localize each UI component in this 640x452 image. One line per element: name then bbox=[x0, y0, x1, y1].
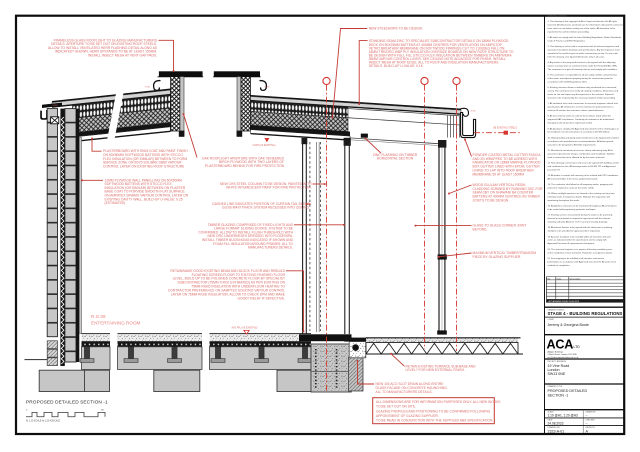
svg-text:R.G.09: R.G.09 bbox=[91, 314, 106, 319]
svg-text:ALL TO MANUFACTURERS DETAILS.: ALL TO MANUFACTURERS DETAILS. bbox=[376, 390, 433, 394]
svg-text:2323-A-01: 2323-A-01 bbox=[548, 429, 565, 433]
svg-text:SERVICE ZONE ON 50/75 SOLIBRE: SERVICE ZONE ON 50/75 SOLIBRE DB80 VAPOU… bbox=[103, 161, 182, 165]
svg-text:75MM RIGID INSULATION WITH UND: 75MM RIGID INSULATION WITH UNDERFLOOR HE… bbox=[191, 285, 285, 289]
svg-text:UB EXISTING STEELS: UB EXISTING STEELS bbox=[493, 127, 517, 129]
svg-text:PROPOSED DETAILED SECTION -1: PROPOSED DETAILED SECTION -1 bbox=[26, 400, 108, 406]
svg-text:FABRICATOR ON 18MM MARINE PLYW: FABRICATOR ON 18MM MARINE PLYWOOD bbox=[473, 161, 542, 165]
svg-text:(ESTIMATED): (ESTIMATED) bbox=[105, 201, 126, 205]
svg-text:ACA: ACA bbox=[547, 337, 574, 351]
svg-text:VOID: VOID bbox=[264, 87, 270, 89]
svg-text:BATTENS AT 400MM CENTRES ON TI: BATTENS AT 400MM CENTRES ON TIMBER bbox=[473, 195, 541, 199]
svg-text:DASHED LINE INDICATES POSITION: DASHED LINE INDICATES POSITION OF CURTAI… bbox=[212, 202, 310, 206]
svg-text:BEYOND.: BEYOND. bbox=[473, 228, 488, 232]
svg-text:CONTROL LAYER ON EXISTING ROOF: CONTROL LAYER ON EXISTING ROOF STRUCTURE bbox=[103, 165, 185, 169]
svg-text:--: -- bbox=[586, 421, 588, 425]
svg-text:LINING TO LAP INTO ROOF BREATH: LINING TO LAP INTO ROOF BREATHER bbox=[473, 169, 535, 173]
svg-text:SEAM-2BY ON SHAWANI BA COUNTER: SEAM-2BY ON SHAWANI BA COUNTER bbox=[473, 191, 534, 195]
svg-text:ON AMPATEX SINAMO VAPOUR CONTR: ON AMPATEX SINAMO VAPOUR CONTROL LAYER O… bbox=[105, 194, 189, 198]
svg-text:CONTRACTOR PREFERENCE ON SAMPT: CONTRACTOR PREFERENCE ON SAMPTEX SOLID'R… bbox=[168, 289, 285, 293]
svg-text:LARGE FORMAT SLIDING DOORS. SY: LARGE FORMAT SLIDING DOORS. SYSTEM TO BE bbox=[214, 227, 294, 231]
svg-text:TO BE SET OUT ON SITE.: TO BE SET OUT ON SITE. bbox=[376, 405, 416, 409]
svg-text:12MM PLYWOOD WALL PANELLING ON: 12MM PLYWOOD WALL PANELLING ON 50X50MM bbox=[105, 178, 183, 182]
svg-text:STAGE 4 - BUILDING REGULATIONS: STAGE 4 - BUILDING REGULATIONS bbox=[548, 311, 623, 316]
svg-text:1M: 1M bbox=[101, 410, 104, 412]
svg-text:WOOD GLULAM VERTICAL RESIN: WOOD GLULAM VERTICAL RESIN bbox=[473, 183, 527, 187]
svg-text:MANUFACTURERS DETAILS.: MANUFACTURERS DETAILS. bbox=[248, 246, 293, 250]
svg-text:GLASS TO GLASS CORNER JOINT: GLASS TO GLASS CORNER JOINT bbox=[473, 224, 527, 228]
svg-text:INDICATED? SHOWN. HERR UPSTAND: INDICATED? SHOWN. HERR UPSTANDS TO BE AT… bbox=[55, 50, 157, 54]
svg-text:SW13 0NE: SW13 0NE bbox=[548, 372, 566, 376]
svg-text:19 Vine Road: 19 Vine Road bbox=[548, 364, 570, 368]
svg-text:NEW 100 ACO SLOT DRAIN ALONG E: NEW 100 ACO SLOT DRAIN ALONG ENTIRE bbox=[376, 382, 445, 386]
svg-text:LTD: LTD bbox=[574, 345, 581, 349]
svg-text:FLOATING SCREED FLOOR TO EXIST: FLOATING SCREED FLOOR TO EXISTING FINISH… bbox=[192, 273, 286, 277]
svg-text:VOID: VOID bbox=[470, 110, 476, 112]
svg-text:VOID: VOID bbox=[145, 87, 151, 89]
svg-text:CONFIRMED. ALLOW TO INSTALL FL: CONFIRMED. ALLOW TO INSTALL FLUSH THRESH… bbox=[198, 230, 293, 234]
svg-text:GLASS FACADE ON CONCRETE HAUNC: GLASS FACADE ON CONCRETE HAUNCHING. bbox=[376, 386, 448, 390]
svg-text:PLASTERBOARD BEHIND FOR FIRE P: PLASTERBOARD BEHIND FOR FIRE PROTECTION bbox=[205, 164, 285, 168]
svg-text:DETAILS. APERTURE TO BE SET OU: DETAILS. APERTURE TO BE SET OUT ON EXIST… bbox=[51, 42, 157, 46]
svg-text:EXISTING CAVITY WALL. BUILD-UP: EXISTING CAVITY WALL. BUILD-UP U-VALUE: … bbox=[105, 197, 183, 201]
svg-text:TO BE READ IN CONJUNCTION WITH: TO BE READ IN CONJUNCTION WITH THE SUPPL… bbox=[376, 418, 493, 422]
svg-text:ON 50X50MM SOFTWOOD BATTENS W: ON 50X50MM SOFTWOOD BATTENS WITH STICCO bbox=[103, 153, 183, 157]
svg-text:LEVEL? FOR NEW EXTERNAL FINISH: LEVEL? FOR NEW EXTERNAL FINISH. bbox=[406, 368, 466, 372]
svg-text:INSTALL TIMBER BUCKING/AS INDI: INSTALL TIMBER BUCKING/AS INDICATED IF S… bbox=[202, 238, 294, 242]
svg-text:POWDER COATED METAL GUTTER FAS: POWDER COATED METAL GUTTER FASCIA bbox=[473, 153, 542, 157]
svg-text:BASE COAT TO PORVIDE SMOOTH FL: BASE COAT TO PORVIDE SMOOTH FLAT SURFACE bbox=[105, 190, 186, 194]
svg-text:BOX GUTTER LINED WITH EPDM. GU: BOX GUTTER LINED WITH EPDM. GUTTER bbox=[473, 165, 541, 169]
svg-text:ALL DIMENSIONS ARE FOR INFORMA: ALL DIMENSIONS ARE FOR INFORMATION PURPO… bbox=[376, 400, 501, 404]
svg-text:NEW STEELWORK TO BE DESIGN.: NEW STEELWORK TO BE DESIGN. bbox=[369, 27, 423, 31]
svg-text:MEMBRANE 50 AT LEAST 150MM: MEMBRANE 50 AT LEAST 150MM bbox=[473, 173, 525, 177]
svg-text:AND ZN WRAPPED TO BE AGREED WI: AND ZN WRAPPED TO BE AGREED WITH bbox=[473, 157, 538, 161]
svg-text:RETAIN/MAKE GOOD EXISTING BEAM: RETAIN/MAKE GOOD EXISTING BEAM AND BLOCK… bbox=[170, 269, 285, 273]
svg-text:BIRCH PLYWOOD WITH TWO LAYERS: BIRCH PLYWOOD WITH TWO LAYERS OF bbox=[219, 160, 284, 164]
svg-text:FRAMELESS GLASS ROOFLIGHT TO G: FRAMELESS GLASS ROOFLIGHT TO GLAZING MAN… bbox=[54, 38, 158, 42]
svg-text:ZINC FLASHING ON TIMBER: ZINC FLASHING ON TIMBER bbox=[373, 153, 418, 157]
svg-text:DETAILS. BUILD-UP U-VALUE: 0.1: DETAILS. BUILD-UP U-VALUE: 0.1K bbox=[369, 64, 424, 68]
svg-text:GLISS MAXI TRACK SYSTEM RECESS: GLISS MAXI TRACK SYSTEM RECESSED INTO CE… bbox=[222, 206, 310, 210]
svg-text:JOISTS TO BE DESIGN: JOISTS TO BE DESIGN bbox=[473, 199, 509, 203]
svg-text:WHITE INTUMESCENT PAINT FOR FI: WHITE INTUMESCENT PAINT FOR FIRE PROTECT… bbox=[226, 186, 311, 190]
svg-text:FOAM FILL INSULATION AROUND FR: FOAM FILL INSULATION AROUND FRAMES. ALL … bbox=[213, 242, 293, 246]
svg-text:TIMBER GLAZING COMPRISED OF FI: TIMBER GLAZING COMPRISED OF FIXED LIGHTS… bbox=[208, 223, 294, 227]
svg-text:SECTION -1: SECTION -1 bbox=[548, 394, 569, 398]
svg-text:MAXIMUM VERTICAL TIMBER/TRANSO: MAXIMUM VERTICAL TIMBER/TRANSOM bbox=[473, 251, 537, 255]
svg-text:ENTERTAINING ROOM: ENTERTAINING ROOM bbox=[91, 320, 141, 325]
svg-text:INSULATION (OR SIMILAR) BETWEE: INSULATION (OR SIMILAR) BETWEEN ON PLAST… bbox=[105, 186, 186, 190]
svg-text:GLAZING PROFILES AND POSITIONI: GLAZING PROFILES AND POSITIONING TO BE C… bbox=[376, 409, 491, 413]
svg-text:ALLOW TO INSTALL VENTILATED H: ALLOW TO INSTALL VENTILATED HERR FLASHIN… bbox=[48, 46, 158, 50]
svg-text:PROPOSED DETAILED: PROPOSED DETAILED bbox=[548, 389, 588, 393]
svg-text:HORIZONTAL SECTION: HORIZONTAL SECTION bbox=[377, 157, 414, 161]
svg-text:LEVEL. BUILD UP TO BE POLISHED: LEVEL. BUILD UP TO BE POLISHED CONCRETE … bbox=[173, 277, 285, 281]
svg-text:PLASTERBOARD WITH SKIM COAT AN: PLASTERBOARD WITH SKIM COAT AND PAINT FI… bbox=[103, 149, 188, 153]
svg-text:Jeremy & Georgina Boote: Jeremy & Georgina Boote bbox=[548, 323, 589, 327]
svg-text:FLEX INSULATION (OR SIMILAR) B: FLEX INSULATION (OR SIMILAR) BETWEEN TO … bbox=[103, 157, 187, 161]
svg-text:GOOD? RELAY IF DEFECTIVE.: GOOD? RELAY IF DEFECTIVE. bbox=[237, 296, 285, 300]
svg-text:CLIENT: CLIENT bbox=[548, 319, 556, 321]
svg-text:OAK ROOFLIGHT APERTURE WITH OA: OAK ROOFLIGHT APERTURE WITH OAK VENEERED bbox=[202, 156, 285, 160]
svg-text:NEW CHS STEEL COLUMN TO BE DES: NEW CHS STEEL COLUMN TO BE DESIGN. PAINT… bbox=[220, 182, 312, 186]
svg-text:SUBCONTRACTOR (75MM THICK ESTI: SUBCONTRACTOR (75MM THICK ESTIMATED) AS … bbox=[177, 281, 285, 285]
svg-text:NEW ORC UNDERHEATH DRESSED INT: NEW ORC UNDERHEATH DRESSED INTO FLOOR/SP… bbox=[207, 234, 293, 238]
svg-text:LAYER ON 75MM RIGID INSULATION: LAYER ON 75MM RIGID INSULATION. ALLOW TO… bbox=[171, 292, 286, 296]
svg-text:London: London bbox=[548, 368, 560, 372]
svg-text:INSTALL INSECT MESH AT VENT GA: INSTALL INSECT MESH AT VENT GAP PADS. bbox=[88, 54, 157, 58]
svg-text:APPOINTMENT OF GLAZING SUPPLIE: APPOINTMENT OF GLAZING SUPPLIER. bbox=[376, 414, 439, 418]
svg-text:RETAIN EXISTING TERRACE SUB-BA: RETAIN EXISTING TERRACE SUB-BASE AND bbox=[406, 364, 477, 368]
svg-text:--: -- bbox=[586, 413, 588, 417]
svg-text:CLADDING SCRIBED BY RUNNING DS: CLADDING SCRIBED BY RUNNING DSC FOR bbox=[473, 187, 544, 191]
svg-text:1:10 @A1, 1:20 @A3: 1:10 @A1, 1:20 @A3 bbox=[548, 413, 578, 417]
svg-text:REVISION: REVISION bbox=[586, 427, 596, 429]
svg-text:PIECE BY GLAZING SUPPLIER.: PIECE BY GLAZING SUPPLIER. bbox=[473, 255, 522, 259]
svg-text:SOFTWOOD BATTENS WITH STICCO F: SOFTWOOD BATTENS WITH STICCO FLEX bbox=[105, 182, 173, 186]
svg-text:VOID: VOID bbox=[53, 105, 59, 107]
svg-text:24.08.2023: 24.08.2023 bbox=[548, 421, 564, 425]
